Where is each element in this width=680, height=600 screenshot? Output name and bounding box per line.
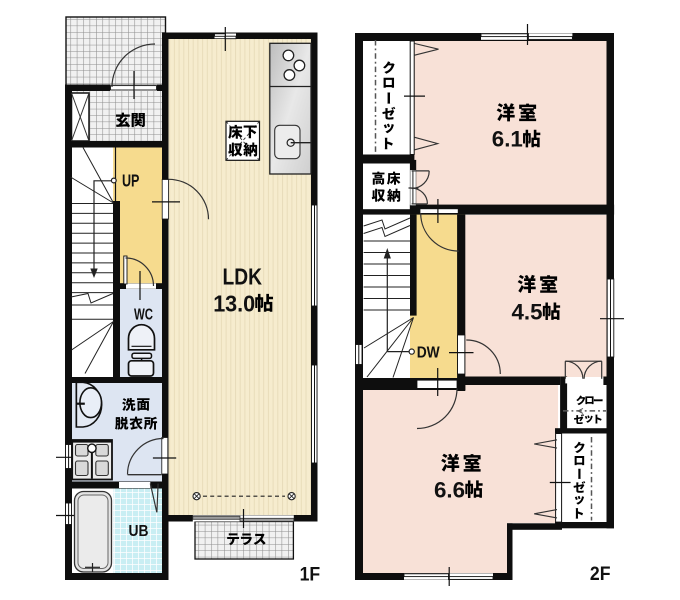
svg-text:LDK: LDK xyxy=(223,263,263,289)
svg-text:4.5: 4.5 xyxy=(512,299,543,324)
svg-text:6.6: 6.6 xyxy=(434,477,465,502)
svg-text:WC: WC xyxy=(134,306,153,323)
svg-text:DW: DW xyxy=(417,344,440,361)
svg-text:13.0: 13.0 xyxy=(213,290,255,316)
svg-text:UB: UB xyxy=(129,523,149,540)
svg-text:6.1: 6.1 xyxy=(492,127,523,152)
svg-text:1F: 1F xyxy=(300,564,321,585)
svg-text:UP: UP xyxy=(122,171,140,191)
svg-text:2F: 2F xyxy=(590,564,611,585)
